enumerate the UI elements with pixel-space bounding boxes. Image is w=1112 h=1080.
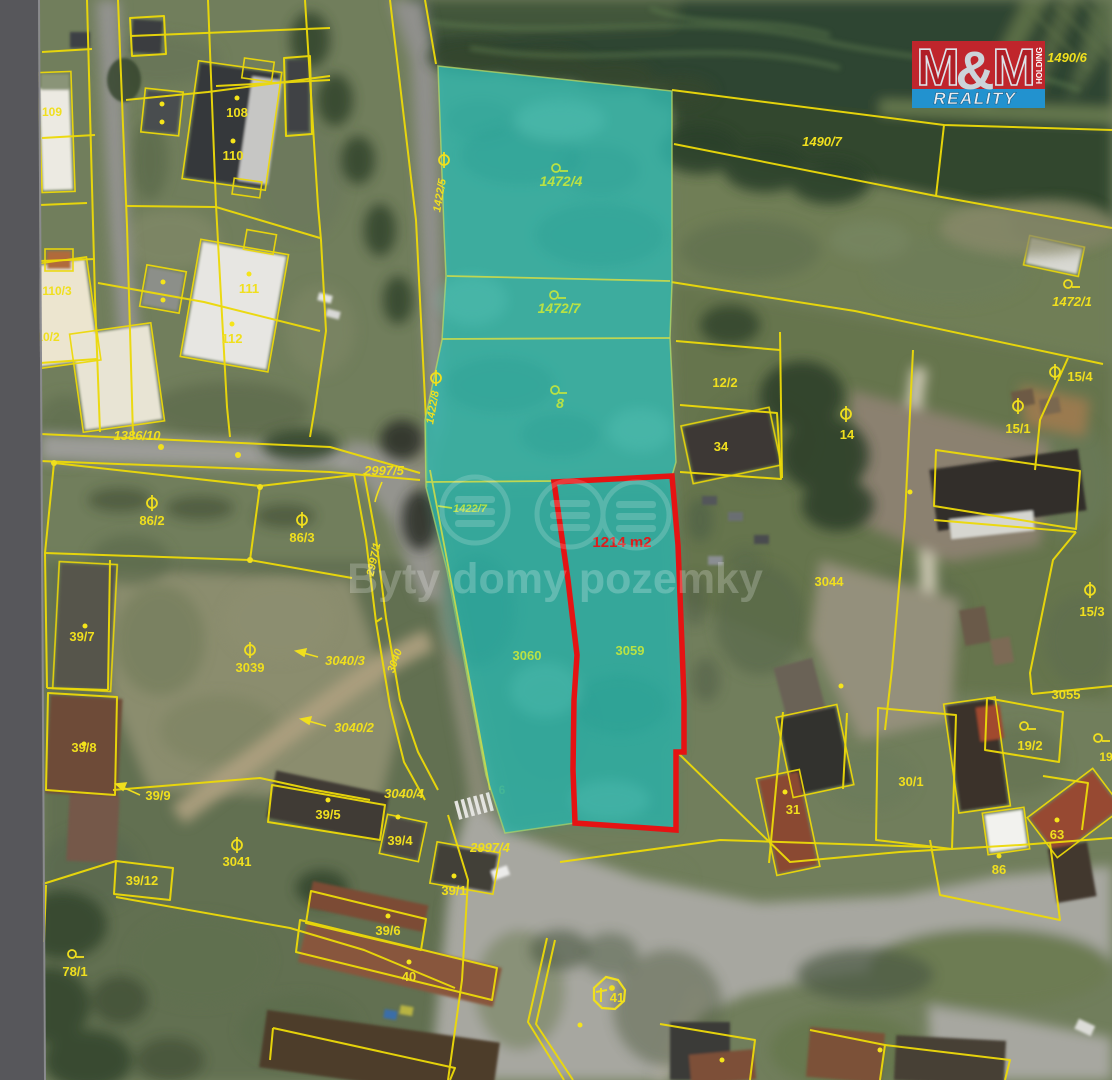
svg-text:109: 109 bbox=[42, 105, 62, 119]
svg-text:86/2: 86/2 bbox=[139, 513, 164, 528]
svg-text:REALITY: REALITY bbox=[933, 89, 1016, 108]
svg-text:1490/7: 1490/7 bbox=[802, 134, 843, 149]
svg-text:110/3: 110/3 bbox=[42, 284, 72, 298]
svg-text:19: 19 bbox=[1099, 750, 1112, 764]
svg-text:39/1: 39/1 bbox=[441, 883, 466, 898]
svg-text:HOLDING: HOLDING bbox=[1035, 47, 1044, 84]
svg-text:112: 112 bbox=[222, 331, 243, 346]
svg-text:1472/7: 1472/7 bbox=[538, 300, 582, 316]
svg-text:3041: 3041 bbox=[223, 854, 252, 869]
svg-text:2997/4: 2997/4 bbox=[469, 840, 511, 855]
svg-text:108: 108 bbox=[226, 105, 248, 120]
svg-text:39/4: 39/4 bbox=[387, 833, 413, 848]
svg-text:3060: 3060 bbox=[513, 648, 542, 663]
svg-text:3039: 3039 bbox=[236, 660, 265, 675]
svg-text:15/3: 15/3 bbox=[1079, 604, 1104, 619]
svg-text:15/1: 15/1 bbox=[1005, 421, 1030, 436]
svg-text:78/1: 78/1 bbox=[62, 964, 87, 979]
svg-text:40: 40 bbox=[402, 969, 416, 984]
svg-text:30/1: 30/1 bbox=[898, 774, 923, 789]
svg-text:3040/2: 3040/2 bbox=[334, 720, 375, 735]
svg-text:110: 110 bbox=[223, 148, 244, 163]
svg-text:3040/3: 3040/3 bbox=[325, 653, 366, 668]
svg-text:3059: 3059 bbox=[616, 643, 645, 658]
svg-text:19/2: 19/2 bbox=[1017, 738, 1042, 753]
svg-text:39/5: 39/5 bbox=[315, 807, 340, 822]
svg-text:3055: 3055 bbox=[1052, 687, 1081, 702]
svg-text:3044: 3044 bbox=[815, 574, 845, 589]
svg-text:39/9: 39/9 bbox=[145, 788, 170, 803]
svg-text:15/4: 15/4 bbox=[1067, 369, 1093, 384]
svg-text:31: 31 bbox=[786, 802, 800, 817]
svg-text:39/8: 39/8 bbox=[71, 740, 96, 755]
svg-text:1472/4: 1472/4 bbox=[540, 173, 583, 189]
svg-text:2997/5: 2997/5 bbox=[363, 463, 405, 478]
svg-text:Byty domy pozemky: Byty domy pozemky bbox=[347, 555, 763, 603]
svg-text:1490/6: 1490/6 bbox=[1047, 50, 1088, 65]
svg-text:39/12: 39/12 bbox=[126, 873, 159, 888]
svg-text:86: 86 bbox=[992, 862, 1006, 877]
svg-text:8: 8 bbox=[556, 395, 564, 411]
svg-text:14: 14 bbox=[840, 427, 855, 442]
svg-text:63: 63 bbox=[1050, 827, 1064, 842]
svg-text:1386/10: 1386/10 bbox=[114, 428, 162, 443]
svg-text:86/3: 86/3 bbox=[289, 530, 314, 545]
svg-text:1472/1: 1472/1 bbox=[1052, 294, 1092, 309]
svg-text:34: 34 bbox=[714, 439, 729, 454]
svg-text:39/6: 39/6 bbox=[375, 923, 400, 938]
svg-text:12/2: 12/2 bbox=[712, 375, 737, 390]
svg-text:3040/4: 3040/4 bbox=[384, 786, 425, 801]
svg-text:111: 111 bbox=[239, 281, 259, 296]
svg-text:39/7: 39/7 bbox=[69, 629, 94, 644]
